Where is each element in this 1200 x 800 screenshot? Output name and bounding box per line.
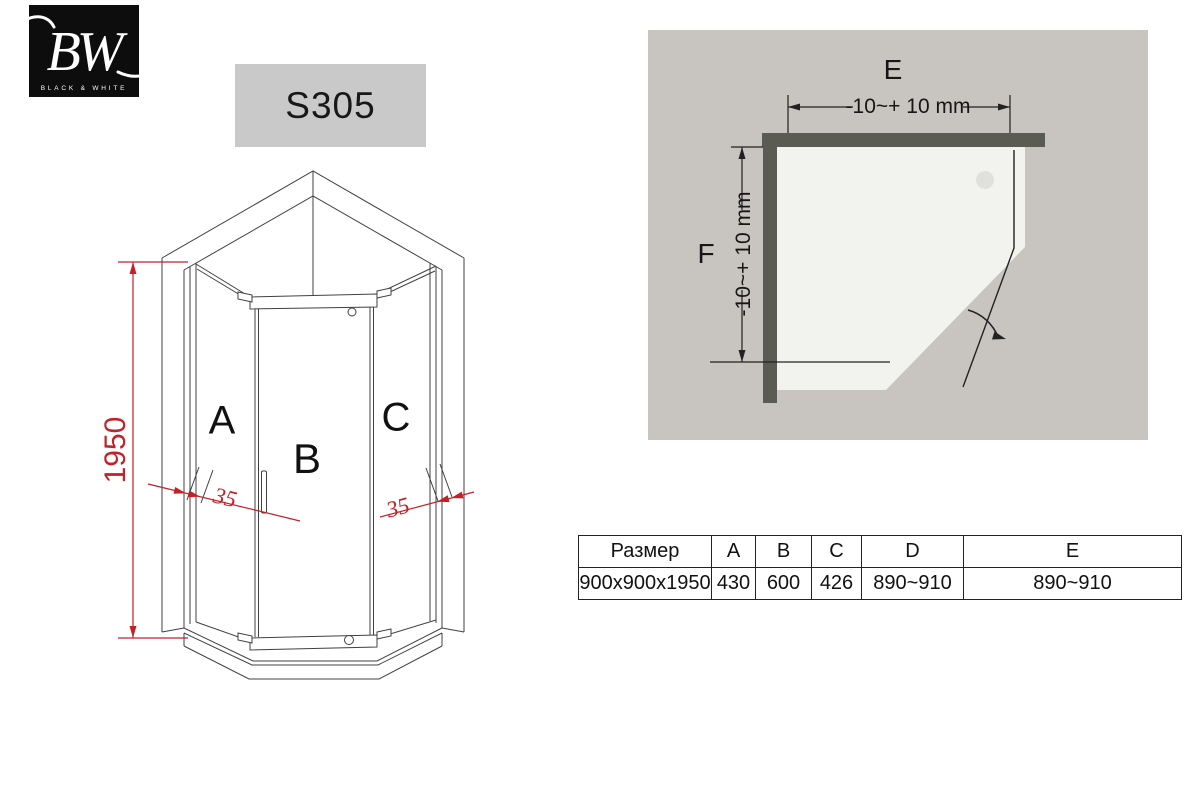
logo-caption: BLACK & WHITE — [41, 85, 128, 92]
bottom-rail-bracket-right — [377, 629, 391, 639]
arrow-left-35-b-icon — [188, 490, 201, 497]
door-roller-bottom-icon — [345, 636, 354, 645]
door-roller-top-icon — [348, 308, 356, 316]
panel-label-a: A — [209, 399, 236, 444]
arrow-down-icon — [130, 626, 137, 638]
arrow-left-35-a-icon — [174, 487, 187, 494]
bottom-rail-bracket-left — [238, 633, 252, 643]
door-top-rail — [250, 294, 377, 309]
top-view-drawing — [648, 30, 1148, 440]
header-size: Размер — [579, 536, 712, 568]
wall-outer-edges — [162, 171, 464, 632]
logo-monogram: BW — [47, 21, 128, 83]
arrow-up-icon — [130, 262, 137, 274]
door-handle — [262, 471, 267, 513]
tray-skirt — [184, 646, 442, 679]
width-adjust-text: -10~+ 10 mm — [846, 95, 971, 119]
width-label-e: E — [884, 54, 903, 86]
header-c: C — [812, 536, 862, 568]
wall-top — [762, 133, 1045, 147]
value-c: 426 — [812, 568, 862, 600]
value-e: 890~910 — [964, 568, 1182, 600]
arrow-right-35-a-icon — [437, 495, 450, 502]
header-d: D — [862, 536, 964, 568]
table-header-row: Размер A B C D E — [579, 536, 1182, 568]
panel-label-c: C — [382, 396, 411, 441]
top-view-panel: E -10~+ 10 mm F -10~+ 10 mm — [648, 30, 1148, 440]
enclosure-frame — [162, 171, 464, 679]
panel-label-b: B — [293, 435, 321, 483]
spec-table: Размер A B C D E 900x900x1950 430 600 42… — [578, 535, 1182, 600]
swing-arrow-icon — [992, 332, 1006, 340]
tray-sides — [184, 633, 442, 646]
fixed-panel-top-edges — [196, 264, 436, 301]
brand-logo: BW BLACK & WHITE — [0, 0, 190, 105]
value-size: 900x900x1950 — [579, 568, 712, 600]
value-b: 600 — [756, 568, 812, 600]
arrow-right-icon — [998, 104, 1010, 111]
left-profile-dimension-text: 35 — [211, 483, 240, 514]
table-row: 900x900x1950 430 600 426 890~910 890~910 — [579, 568, 1182, 600]
page: BW BLACK & WHITE S305 — [0, 0, 1200, 800]
right-profile-dimension-text: 35 — [384, 492, 413, 523]
arrow-right-35-b-icon — [451, 492, 464, 499]
drain-icon — [976, 171, 994, 189]
arrow-down-icon — [739, 350, 746, 362]
wall-bottoms — [162, 628, 464, 632]
height-dimension-text: 1950 — [99, 417, 133, 484]
depth-label-f: F — [697, 238, 714, 270]
arrow-left-icon — [788, 104, 800, 111]
tray-rim-inner — [184, 633, 442, 665]
value-d: 890~910 — [862, 568, 964, 600]
header-e: E — [964, 536, 1182, 568]
header-a: A — [712, 536, 756, 568]
model-badge: S305 — [235, 64, 426, 147]
fixed-panel-bottom-edges — [196, 620, 436, 641]
model-number: S305 — [285, 85, 375, 127]
depth-adjust-text: -10~+ 10 mm — [732, 192, 756, 317]
value-a: 430 — [712, 568, 756, 600]
header-b: B — [756, 536, 812, 568]
arrow-up-icon — [739, 147, 746, 159]
top-rail-bracket-left — [238, 292, 252, 302]
door-bottom-rail — [250, 635, 377, 650]
top-rail-bracket-right — [377, 288, 391, 298]
tray-rim-outer — [184, 628, 442, 661]
